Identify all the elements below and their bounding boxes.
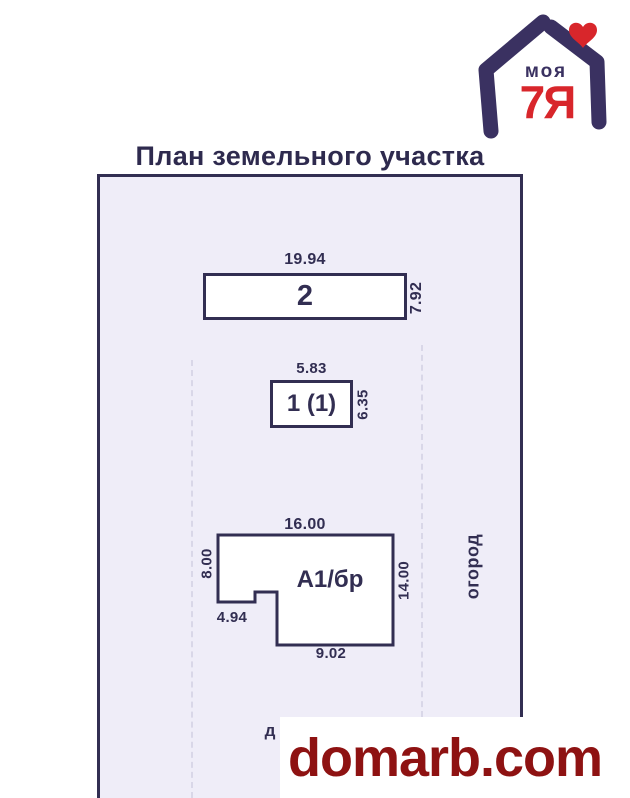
moya-7ya-logo: моя 7Я xyxy=(440,0,630,150)
building-a1-top-dim: 16.00 xyxy=(265,516,345,534)
logo-main-text: 7Я xyxy=(520,76,575,128)
building-a1-right-dim: 14.00 xyxy=(396,557,413,605)
building-1-width-dim: 5.83 xyxy=(270,360,353,377)
building-2-height-dim: 7.92 xyxy=(408,278,426,318)
page-title: План земельного участка xyxy=(87,141,533,172)
watermark-text: domarb.com xyxy=(280,727,602,789)
house-logo-graphic: моя 7Я xyxy=(440,0,630,150)
building-1: 1 (1) xyxy=(270,380,353,428)
building-1-height-dim: 6.35 xyxy=(355,387,372,423)
land-plot-plan-page: моя 7Я План земельного участка 2 19.94 7… xyxy=(0,0,630,798)
building-2-width-dim: 19.94 xyxy=(203,251,407,269)
building-a1-notch-dim: 4.94 xyxy=(202,609,262,626)
zone-divider-left xyxy=(191,360,193,798)
watermark-box: domarb.com xyxy=(280,717,630,798)
garden-zone-label: огород xyxy=(463,531,484,603)
building-2-label: 2 xyxy=(297,280,313,313)
building-a1-label: А1/бр xyxy=(280,566,380,594)
building-a1-bottom-dim: 9.02 xyxy=(301,645,361,662)
zone-divider-right xyxy=(421,345,423,717)
building-2: 2 xyxy=(203,273,407,320)
building-a1-left-dim: 8.00 xyxy=(199,544,216,584)
building-1-label: 1 (1) xyxy=(287,390,336,418)
